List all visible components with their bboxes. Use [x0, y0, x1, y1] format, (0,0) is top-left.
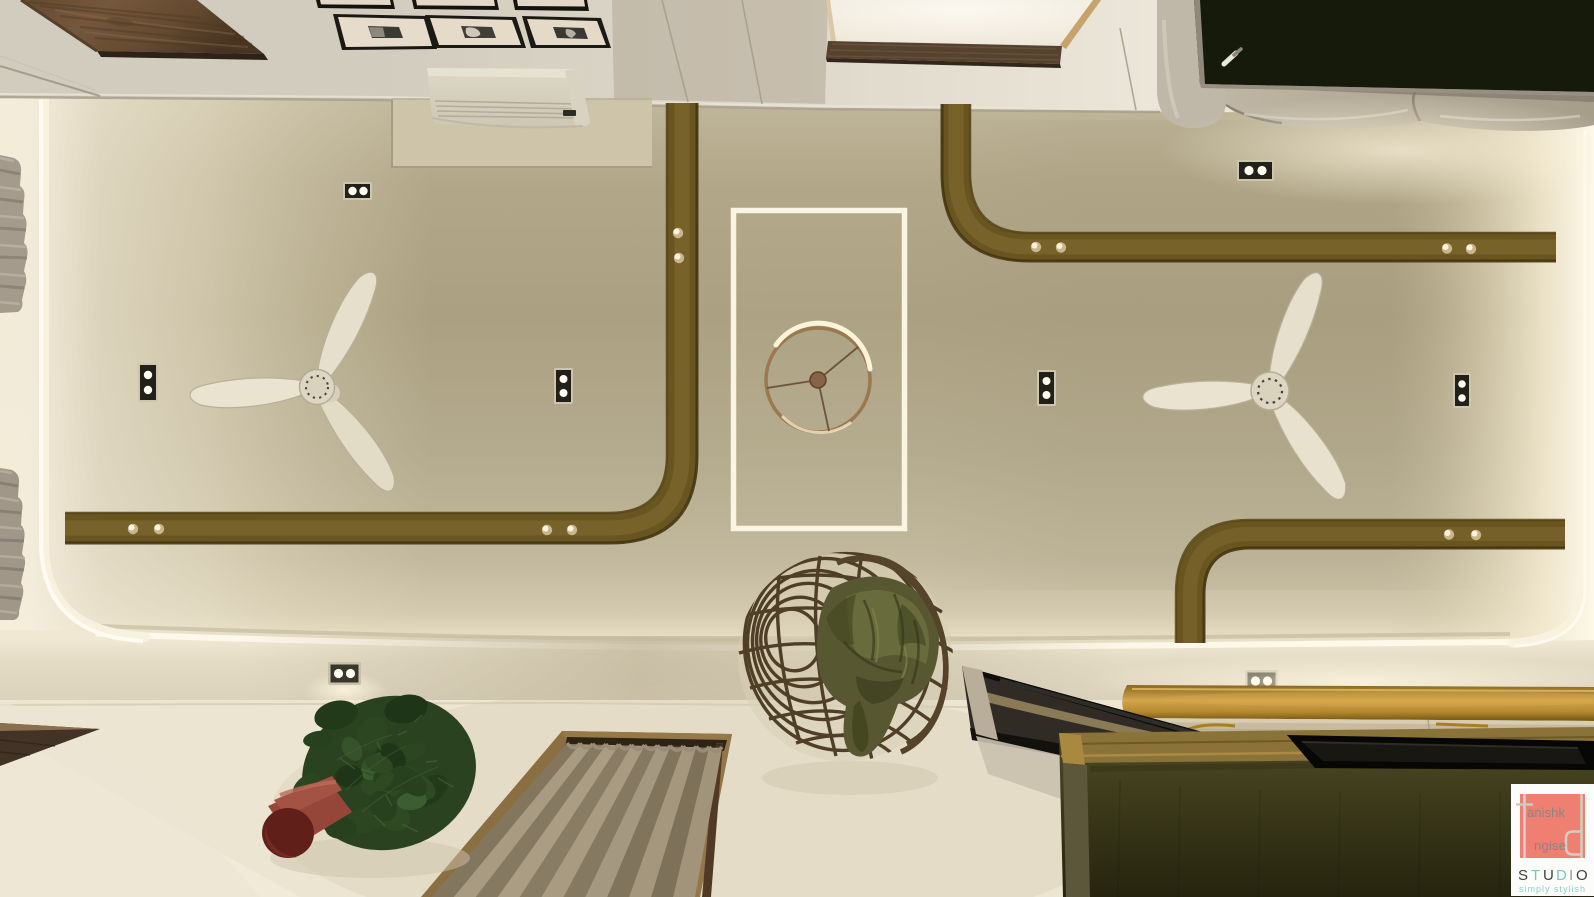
- svg-text:T: T: [1531, 867, 1540, 884]
- svg-text:I: I: [1569, 867, 1573, 884]
- svg-text:D: D: [1556, 867, 1567, 884]
- svg-text:simply stylish: simply stylish: [1519, 884, 1585, 894]
- svg-text:O: O: [1576, 867, 1588, 884]
- svg-text:S: S: [1518, 867, 1528, 884]
- svg-text:U: U: [1543, 867, 1554, 884]
- svg-text:ngise: ngise: [1534, 838, 1566, 853]
- svg-text:anishk: anishk: [1527, 805, 1566, 820]
